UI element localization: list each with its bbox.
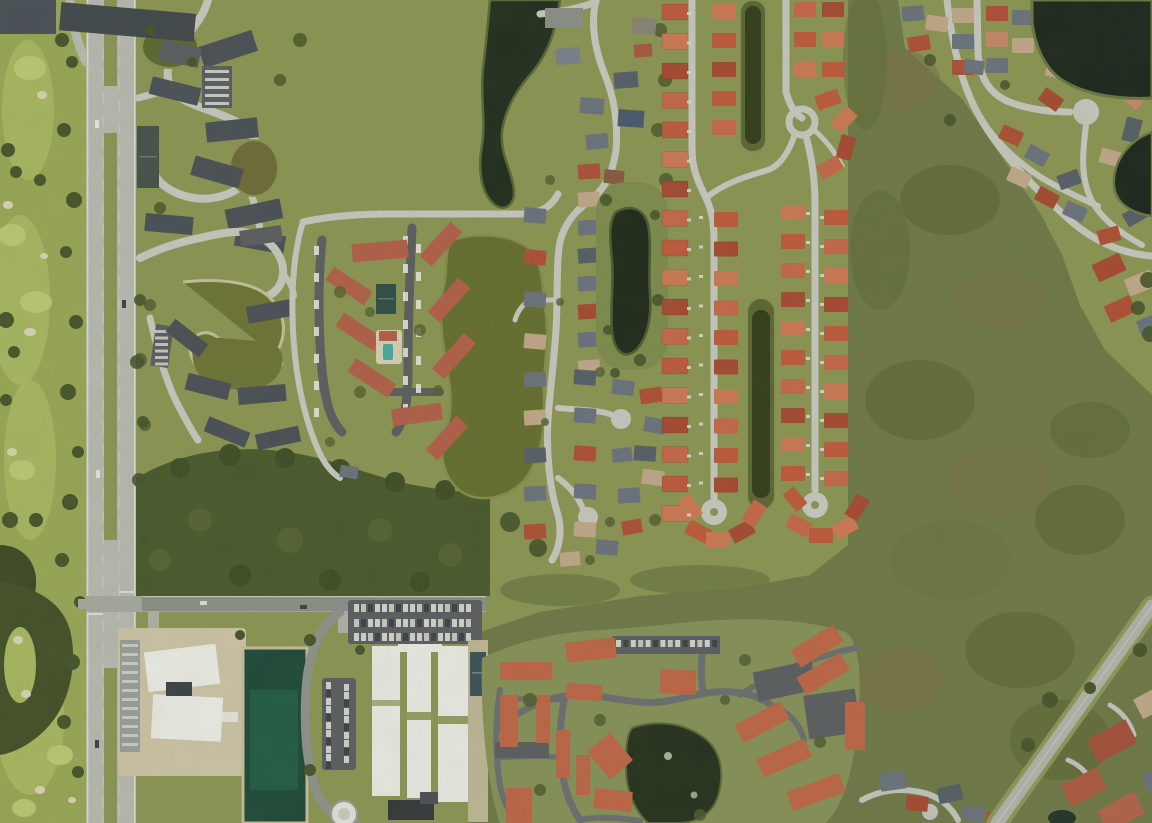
photo-grain-texture [0,0,1152,823]
satellite-imagery-canvas[interactable] [0,0,1152,823]
aerial-map-viewport[interactable]: Aerial satellite view — suburban residen… [0,0,1152,823]
